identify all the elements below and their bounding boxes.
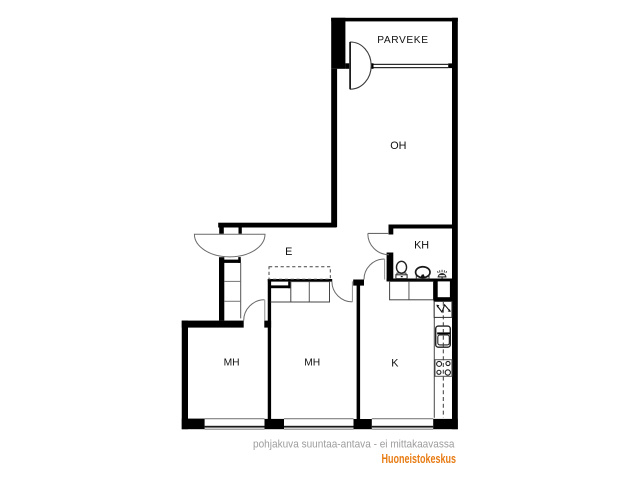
svg-text:Huoneistokeskus: Huoneistokeskus [382, 451, 457, 466]
svg-text:KH: KH [414, 240, 429, 252]
svg-text:E: E [285, 246, 292, 258]
svg-text:pohjakuva suuntaa-antava - ei: pohjakuva suuntaa-antava - ei mittakaava… [253, 438, 455, 450]
svg-text:PARVEKE: PARVEKE [377, 35, 428, 46]
svg-text:K: K [391, 357, 399, 369]
svg-text:MH: MH [224, 357, 240, 368]
svg-text:OH: OH [390, 140, 406, 152]
svg-text:MH: MH [304, 357, 320, 368]
